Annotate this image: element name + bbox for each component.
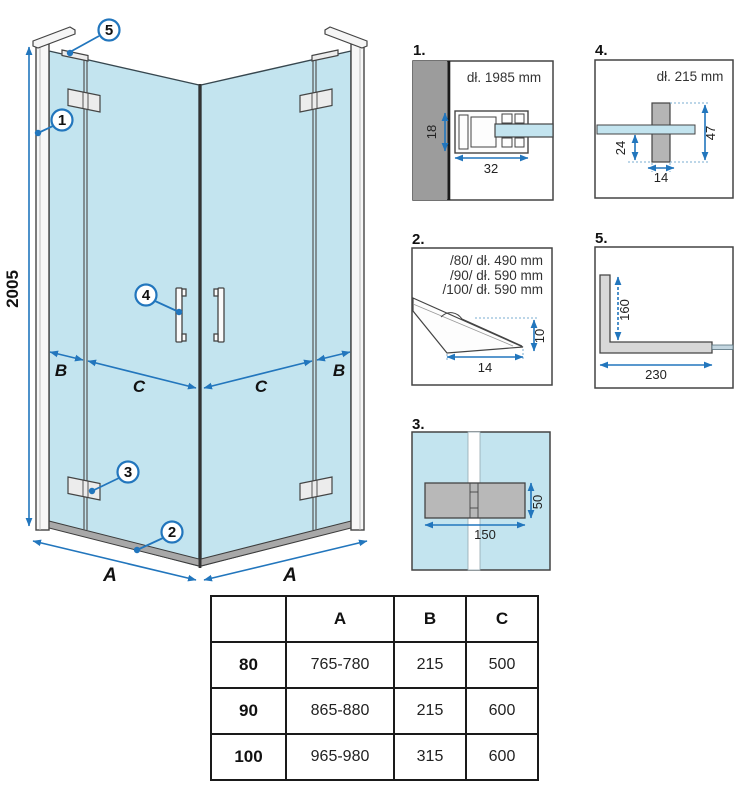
detail-4-handle: 4. dł. 215 mm 47 24 14 [588,36,751,211]
glass-edge [712,345,733,350]
detail-5-number: 5. [595,230,608,247]
detail-1-height-dim: 18 [424,125,439,139]
detail-3-height-dim: 50 [530,495,545,509]
detail-2-number: 2. [412,231,425,248]
hinge-plate [425,483,525,518]
dim-c-left-label: C [133,377,146,396]
cell-a: 765-780 [286,642,394,688]
dim-a-right-label: A [282,565,297,586]
dim-c-right-label: C [255,377,268,396]
col-header-a: A [286,596,394,642]
detail-2-height-dim: 10 [532,329,547,343]
svg-text:4: 4 [142,287,151,304]
detail-4-number: 4. [595,42,608,59]
svg-text:2: 2 [168,524,176,541]
table-corner-cell [211,596,286,642]
detail-1-number: 1. [413,42,426,59]
cell-a: 965-980 [286,734,394,780]
detail-2-line1: /80/ dł. 490 mm [450,253,543,268]
detail-4-length-label: dł. 215 mm [657,69,724,84]
col-header-b: B [394,596,466,642]
main-diagram: 2005 B C C B A A 5 1 4 3 2 [0,0,400,600]
size-table: A B C 80 765-780 215 500 90 865-880 215 … [210,595,539,781]
svg-text:1: 1 [58,112,66,129]
callout-5: 5 [67,20,120,57]
detail-3-hinge: 3. 50 150 [405,413,560,588]
detail-3-width-dim: 150 [474,527,496,542]
detail-2-seal: 2. /80/ dł. 490 mm /90/ dł. 590 mm /100/… [405,226,560,401]
detail-1-wall-profile: 1. dł. 1985 mm 18 32 [405,36,560,211]
detail-5-stabilizer: 5. 160 230 [588,226,751,403]
table-row: 90 865-880 215 600 [211,688,538,734]
detail-4-height-dim: 47 [703,126,718,140]
detail-3-number: 3. [412,416,425,433]
cell-b: 315 [394,734,466,780]
detail-5-width-dim: 230 [645,367,667,382]
svg-text:3: 3 [124,464,132,481]
detail-2-width-dim: 14 [478,360,492,375]
glass-edge [495,124,553,137]
cell-c: 600 [466,734,538,780]
table-row: 80 765-780 215 500 [211,642,538,688]
row-size-label: 100 [211,734,286,780]
cell-b: 215 [394,642,466,688]
cell-c: 500 [466,642,538,688]
detail-1-width-dim: 32 [484,161,498,176]
row-size-label: 90 [211,688,286,734]
detail-4-offset-dim: 24 [613,141,628,155]
cell-c: 600 [466,688,538,734]
height-dimension-label: 2005 [3,270,22,308]
detail-1-length-label: dł. 1985 mm [467,70,541,85]
svg-text:5: 5 [105,22,113,39]
row-size-label: 80 [211,642,286,688]
glass-edge [597,125,695,134]
cell-a: 865-880 [286,688,394,734]
table-row: 100 965-980 315 600 [211,734,538,780]
detail-2-line2: /90/ dł. 590 mm [450,268,543,283]
table-header-row: A B C [211,596,538,642]
detail-4-width-dim: 14 [654,170,668,185]
dim-a-left-label: A [102,565,117,586]
dim-b-left-label: B [55,361,67,380]
col-header-c: C [466,596,538,642]
shower-enclosure-spec-sheet: { "colors": { "glass": "#c3e4ef", "dimen… [0,0,751,800]
detail-2-line3: /100/ dł. 590 mm [442,282,543,297]
detail-5-height-dim: 160 [617,299,632,321]
cell-b: 215 [394,688,466,734]
dim-b-right-label: B [333,361,345,380]
